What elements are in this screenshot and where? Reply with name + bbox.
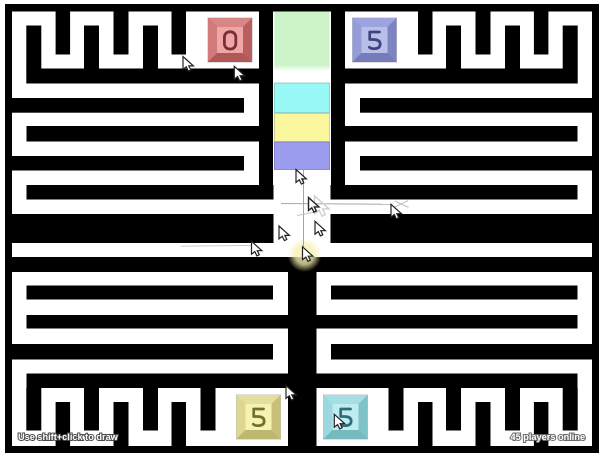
svg-text:Use shift+click to draw: Use shift+click to draw xyxy=(18,432,119,442)
svg-text:45 players online: 45 players online xyxy=(511,432,586,442)
